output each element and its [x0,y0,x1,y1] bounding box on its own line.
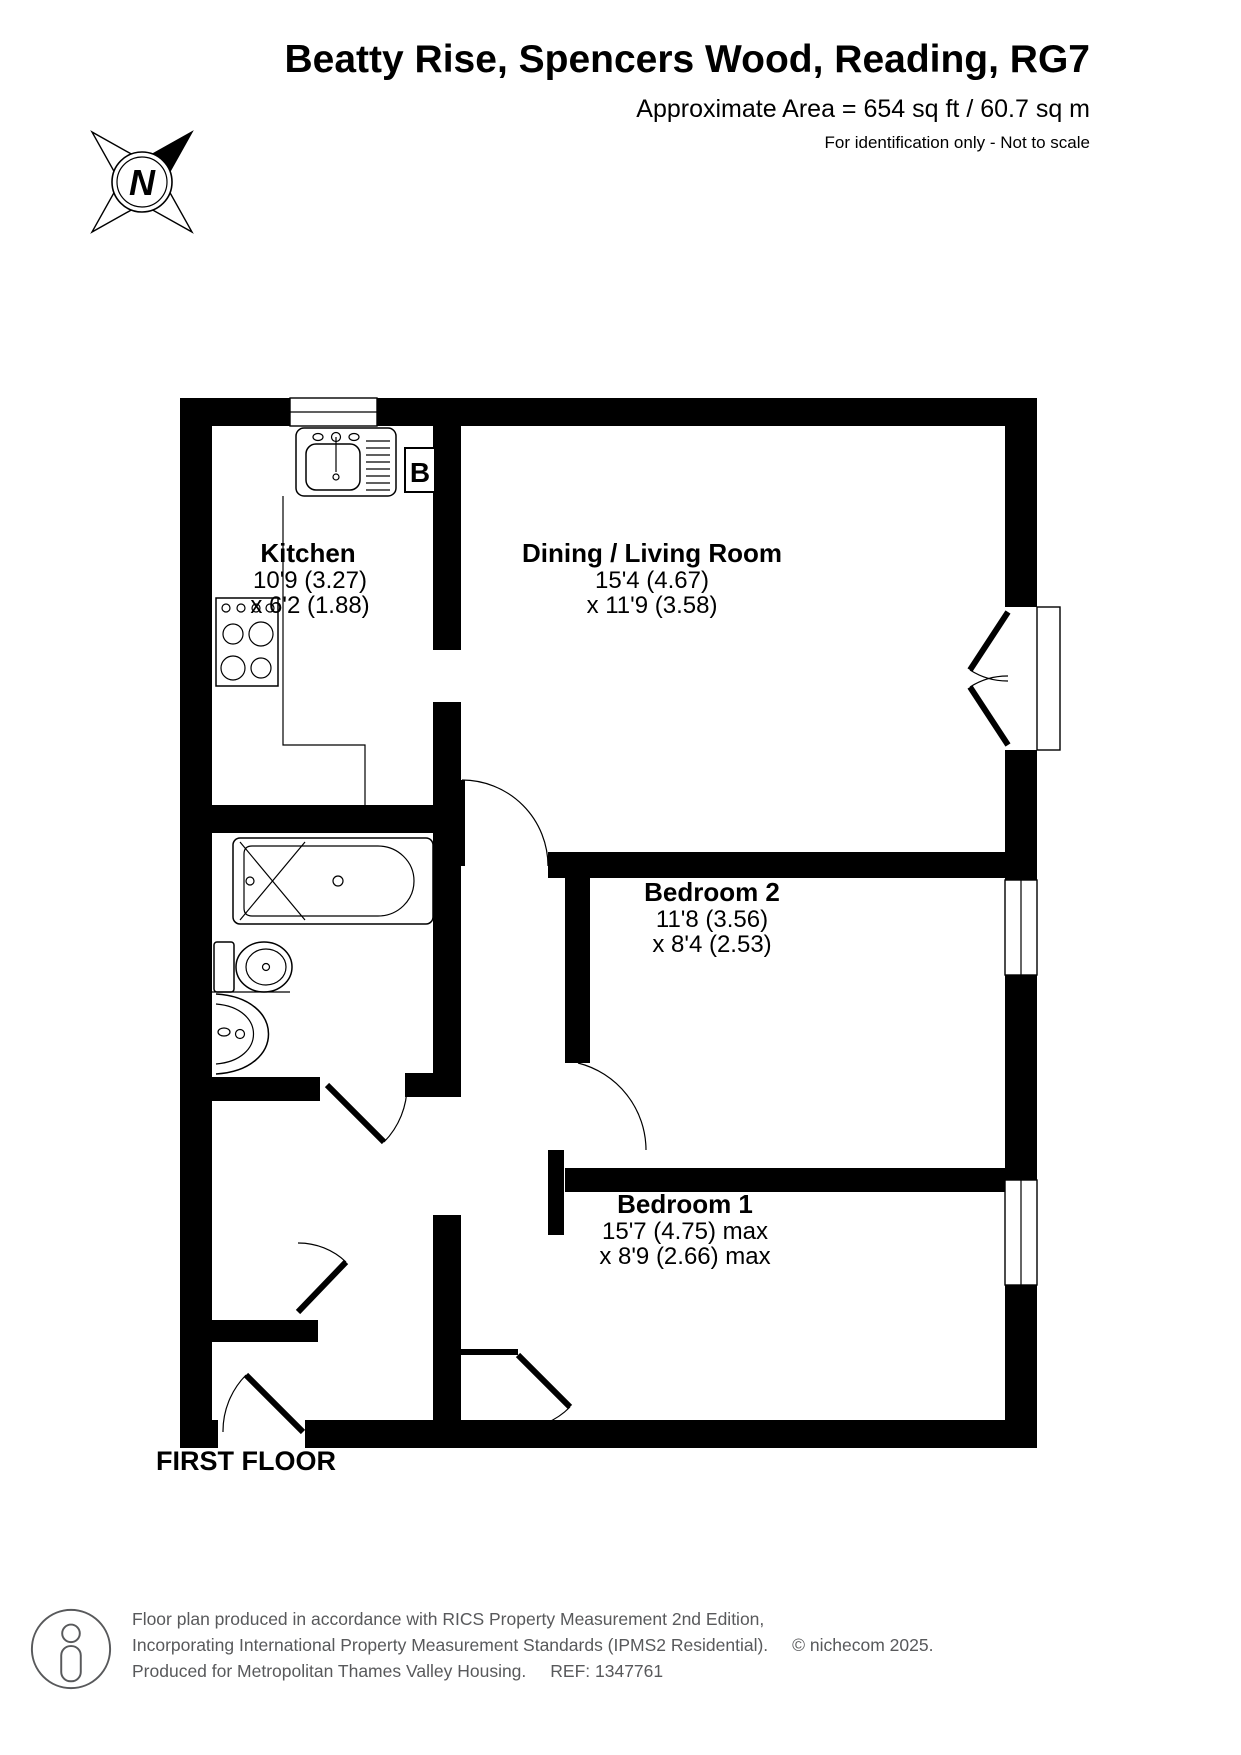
cupboard-door [298,1243,346,1312]
bathroom-door [327,1085,407,1142]
footer-line-2: Incorporating International Property Mea… [132,1632,933,1658]
kitchen-dim2: x 6'2 (1.88) [250,592,369,619]
reference-number: REF: 1347761 [550,1661,663,1681]
bedroom1-door [518,1355,570,1429]
floor-plan: N [0,0,1241,1755]
footer: Floor plan produced in accordance with R… [28,1606,933,1692]
kitchen-window [290,398,377,426]
kitchen-label: Kitchen [260,538,355,568]
living-room-dim2: x 11'9 (3.58) [587,592,718,619]
wash-basin [216,994,269,1074]
copyright: © nichecom 2025. [792,1635,933,1655]
boiler-label: B [410,457,430,488]
floor-label: FIRST FLOOR [156,1446,336,1476]
footer-text: Floor plan produced in accordance with R… [132,1606,933,1684]
footer-line-1: Floor plan produced in accordance with R… [132,1606,933,1632]
bedroom1-window [1005,1180,1037,1285]
bedroom2-window [1005,880,1037,975]
toilet [212,942,292,992]
bedroom1-dim2: x 8'9 (2.66) max [599,1243,770,1270]
bedroom2-label: Bedroom 2 [644,877,780,907]
bedroom1-label: Bedroom 1 [617,1189,753,1219]
living-room-dim1: 15'4 (4.67) [595,567,709,594]
compass-north-icon: N [92,132,192,232]
person-outline-icon [28,1606,114,1692]
kitchen-sink [296,428,396,496]
french-doors [970,607,1060,750]
bedroom1-dim1: 15'7 (4.75) max [602,1218,768,1245]
living-room-label: Dining / Living Room [522,538,782,568]
bedroom2-door [578,1063,646,1150]
bathtub [233,838,433,924]
bedroom2-dim1: 11'8 (3.56) [656,906,768,933]
compass-north-label: N [129,162,156,203]
living-room-door [462,780,548,866]
footer-line-3: Produced for Metropolitan Thames Valley … [132,1658,933,1684]
bedroom2-dim2: x 8'4 (2.53) [652,931,771,958]
boiler: B [405,448,435,492]
fixtures: B [212,428,435,1074]
kitchen-dim1: 10'9 (3.27) [253,567,367,594]
entrance-door [223,1375,303,1432]
